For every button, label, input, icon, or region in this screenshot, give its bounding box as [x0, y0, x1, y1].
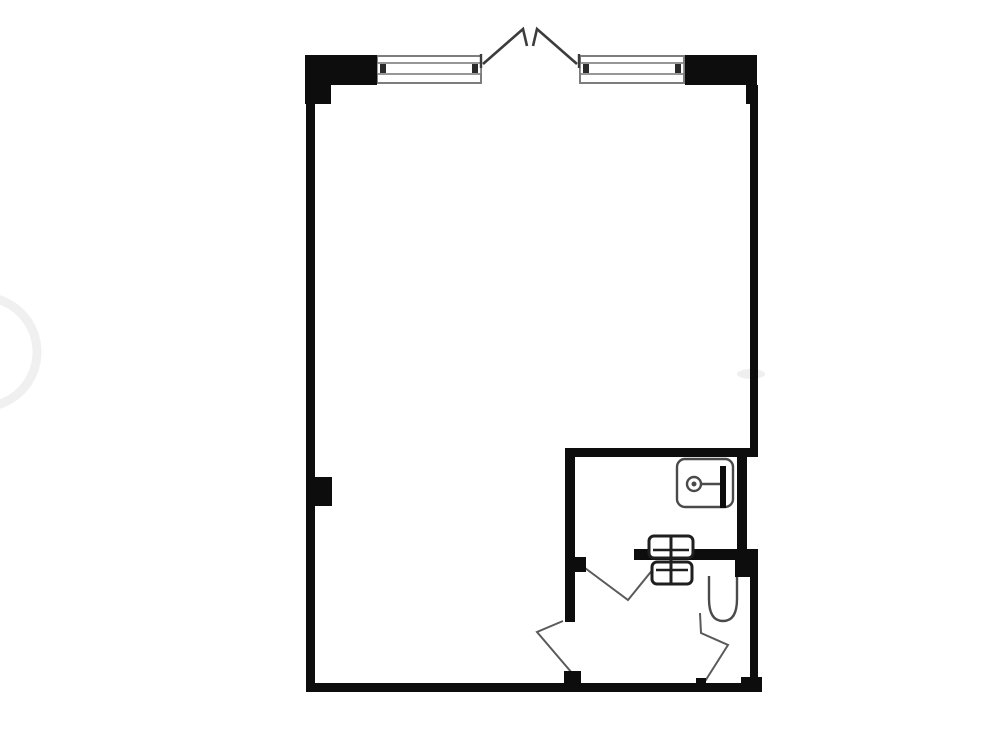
- window-left-tick-0: [380, 64, 386, 73]
- sink-right-wall: [737, 457, 747, 551]
- french-door-leaf-right: [533, 29, 577, 64]
- top-right-pier: [685, 55, 757, 85]
- top-left-pier: [305, 55, 377, 85]
- right-wall-upper: [750, 85, 758, 457]
- wc-door-swing: [700, 613, 728, 686]
- bottom-wall: [306, 683, 762, 692]
- bathroom-door-jamb: [575, 557, 586, 572]
- left-pilaster: [306, 477, 332, 506]
- bathroom-door-swing: [585, 568, 654, 600]
- french-door-leaf-left: [483, 29, 527, 64]
- bathroom-top-wall: [566, 448, 758, 457]
- left-wall: [306, 85, 315, 692]
- sink-drain-dot: [692, 482, 697, 487]
- toilet: [709, 576, 737, 621]
- sink-faucet-bar: [720, 466, 726, 508]
- wc-door-jamb: [696, 678, 706, 684]
- bathroom-left-wall: [565, 448, 575, 622]
- floor-plan-svg: [0, 0, 1000, 750]
- entry-door-jamb: [564, 671, 581, 683]
- window-left-glazing: [377, 63, 481, 74]
- window-right-tick-0: [583, 64, 589, 73]
- entry-door-swing: [537, 621, 572, 673]
- window-right-tick-1: [675, 64, 681, 73]
- window-left-tick-1: [472, 64, 478, 73]
- window-right-glazing: [580, 63, 684, 74]
- right-wall-lower: [750, 560, 758, 692]
- watermark-arc: [0, 297, 37, 407]
- floor-plan-image: [0, 0, 1000, 750]
